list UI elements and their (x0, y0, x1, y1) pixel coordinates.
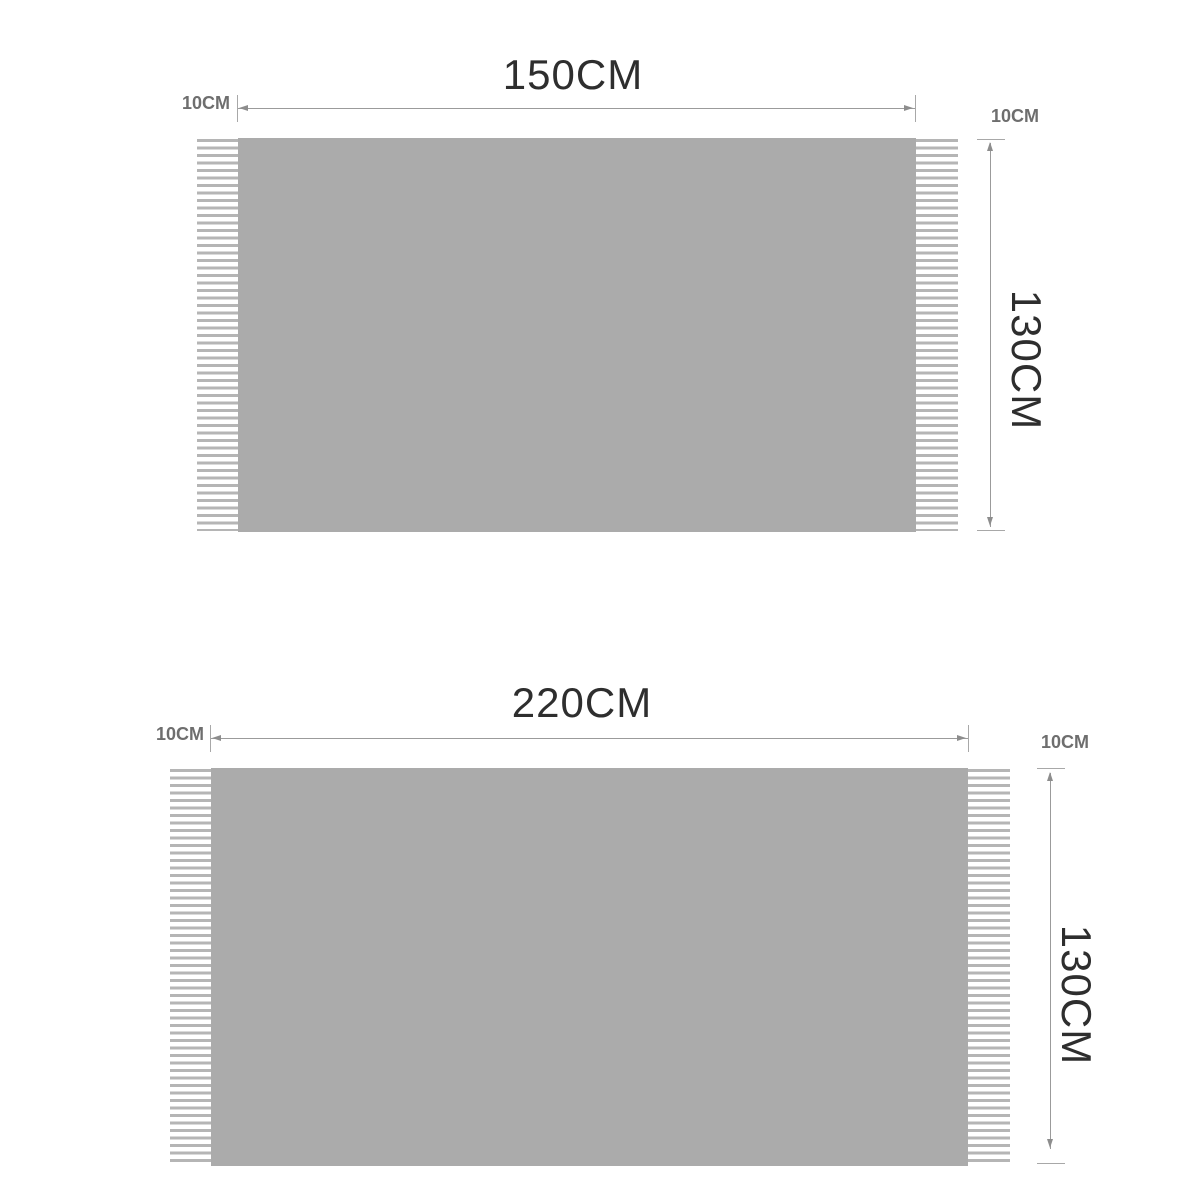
dimension-tick (210, 725, 211, 752)
size-chart-canvas: 150CM 10CM 10CM 130CM 220CM 10CM 10CM (0, 0, 1200, 1200)
arrow-right-icon (904, 105, 913, 111)
arrow-up-icon (1047, 772, 1053, 781)
width-dimension-label: 220CM (452, 681, 712, 725)
blanket-fringe-left (170, 769, 211, 1165)
dimension-tick (1037, 1163, 1065, 1164)
blanket-fringe-right (968, 769, 1010, 1165)
dimension-tick (1037, 768, 1065, 769)
dimension-tick (915, 95, 916, 122)
dimension-tick (237, 95, 238, 122)
blanket-fringe-right (916, 139, 958, 531)
left-fringe-width-label: 10CM (156, 93, 230, 113)
right-fringe-width-label: 10CM (1041, 732, 1111, 752)
left-fringe-width-label: 10CM (130, 724, 204, 744)
arrow-left-icon (239, 105, 248, 111)
height-dimension-line (1050, 773, 1051, 1149)
blanket-fringe-left (197, 139, 238, 531)
height-dimension-label: 130CM (1004, 230, 1048, 490)
dimension-tick (977, 139, 1005, 140)
arrow-down-icon (987, 517, 993, 526)
blanket-body (211, 768, 968, 1166)
height-dimension-line (990, 143, 991, 527)
width-dimension-line (211, 738, 968, 739)
right-fringe-width-label: 10CM (991, 106, 1061, 126)
width-dimension-label: 150CM (443, 53, 703, 97)
blanket-body (238, 138, 916, 532)
dimension-tick (968, 725, 969, 752)
dimension-tick (977, 530, 1005, 531)
arrow-left-icon (212, 735, 221, 741)
arrow-down-icon (1047, 1139, 1053, 1148)
arrow-right-icon (957, 735, 966, 741)
arrow-up-icon (987, 142, 993, 151)
height-dimension-label: 130CM (1054, 865, 1098, 1125)
width-dimension-line (238, 108, 915, 109)
